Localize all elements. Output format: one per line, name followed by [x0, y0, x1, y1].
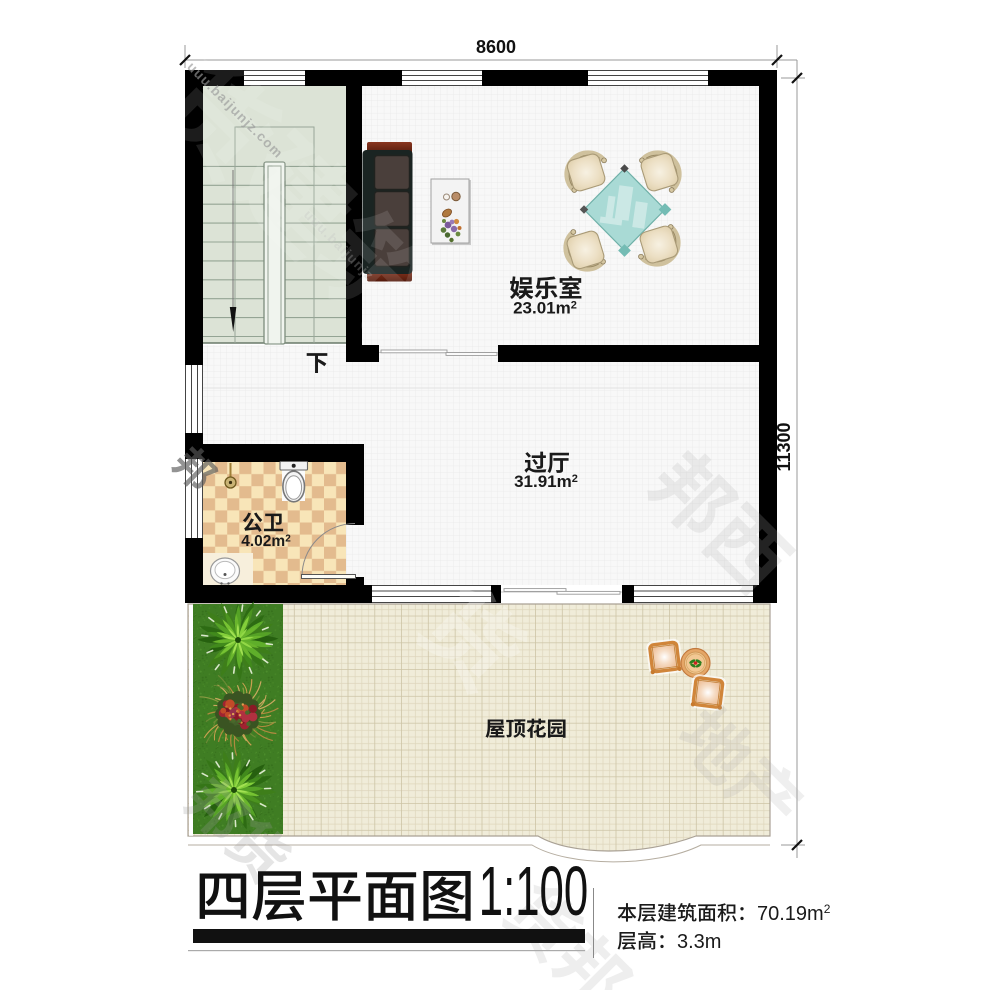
svg-text:8600: 8600: [476, 37, 516, 57]
svg-text:23.01m2: 23.01m2: [513, 299, 577, 318]
svg-text:1:100: 1:100: [479, 853, 588, 931]
svg-text:70.19m2: 70.19m2: [757, 902, 831, 925]
svg-text:4.02m2: 4.02m2: [241, 533, 291, 550]
svg-text:3.3m: 3.3m: [677, 931, 721, 953]
svg-text:31.91m2: 31.91m2: [514, 472, 578, 491]
